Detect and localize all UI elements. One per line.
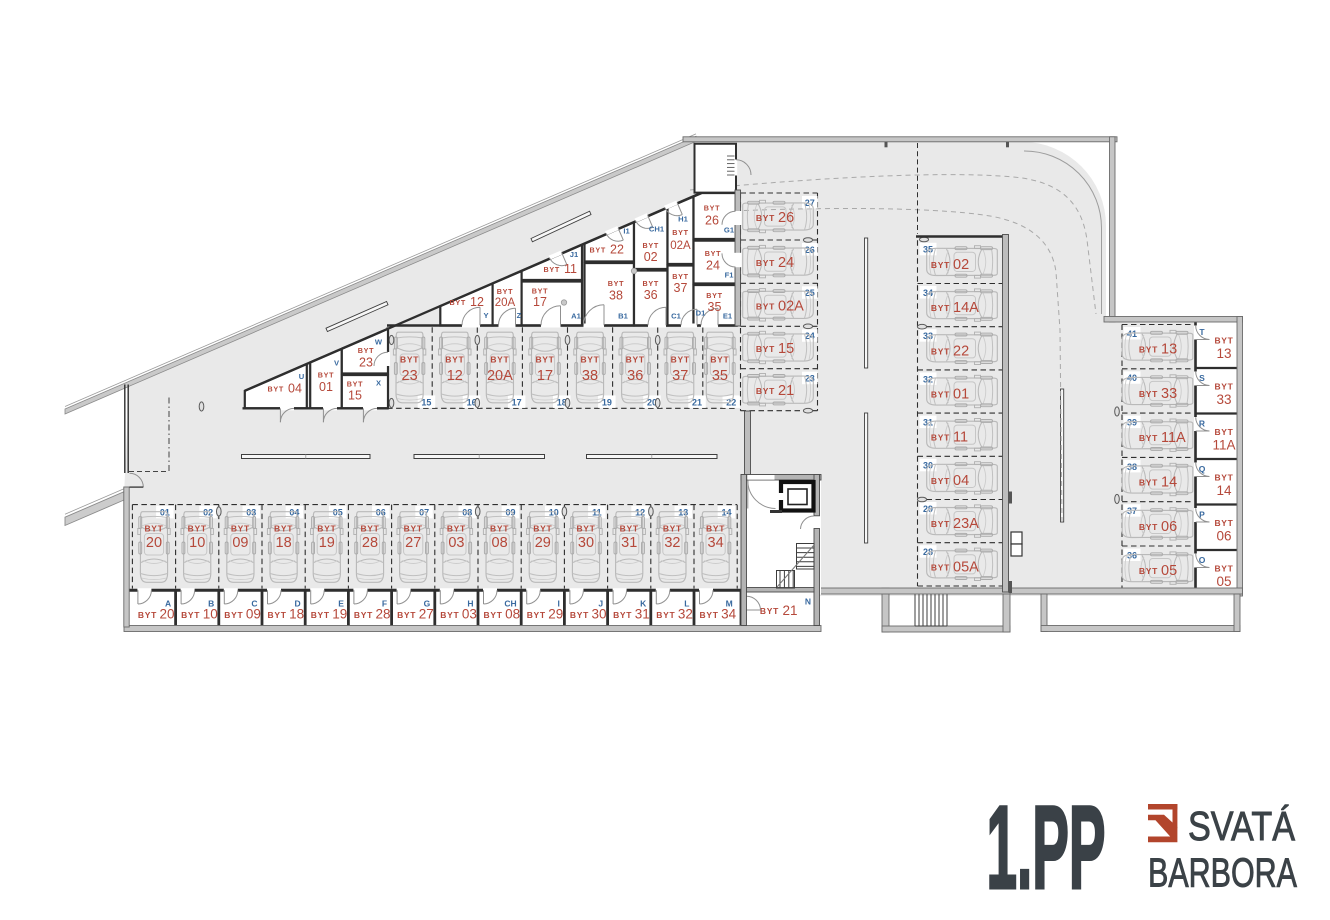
svg-text:BYT: BYT [705, 249, 721, 258]
svg-text:23A: 23A [953, 516, 979, 532]
svg-text:BYT: BYT [642, 241, 658, 250]
svg-text:20A: 20A [495, 297, 516, 309]
svg-text:28: 28 [923, 547, 933, 557]
svg-text:BYT: BYT [580, 355, 599, 365]
svg-text:05: 05 [1216, 574, 1231, 589]
svg-text:18: 18 [276, 535, 292, 551]
svg-text:P: P [1199, 510, 1205, 520]
svg-text:BYT: BYT [1214, 518, 1233, 528]
svg-text:BYT: BYT [527, 610, 546, 620]
svg-text:BYT: BYT [544, 265, 560, 274]
svg-text:W: W [375, 338, 383, 347]
svg-text:F1: F1 [725, 271, 735, 280]
svg-text:BYT: BYT [931, 519, 950, 529]
svg-text:E1: E1 [723, 312, 733, 321]
svg-text:BYT: BYT [1214, 564, 1233, 574]
svg-text:29: 29 [923, 504, 933, 514]
svg-text:11A: 11A [1161, 430, 1186, 446]
svg-text:21: 21 [778, 383, 794, 399]
svg-text:11A: 11A [1212, 438, 1235, 453]
svg-text:33: 33 [1161, 386, 1177, 402]
svg-text:BYT: BYT [138, 610, 157, 620]
svg-text:BYT: BYT [311, 610, 330, 620]
svg-text:15: 15 [348, 389, 362, 403]
svg-text:29: 29 [535, 535, 551, 551]
svg-text:N: N [805, 597, 811, 607]
svg-text:27: 27 [419, 607, 434, 622]
svg-text:14: 14 [1216, 483, 1232, 498]
svg-text:BYT: BYT [533, 524, 552, 534]
svg-text:31: 31 [635, 607, 650, 622]
svg-text:BYT: BYT [188, 524, 207, 534]
svg-text:13: 13 [1216, 346, 1231, 361]
svg-text:BYT: BYT [760, 606, 779, 616]
svg-text:BYT: BYT [710, 355, 729, 365]
svg-text:Q: Q [1199, 464, 1206, 474]
svg-text:31: 31 [621, 535, 637, 551]
svg-text:06: 06 [1216, 529, 1231, 544]
svg-text:BYT: BYT [620, 524, 639, 534]
svg-text:23: 23 [359, 356, 373, 370]
svg-text:D1: D1 [696, 309, 706, 318]
svg-text:BYT: BYT [699, 610, 718, 620]
svg-text:BYT: BYT [931, 433, 950, 443]
svg-text:BYT: BYT [1214, 427, 1233, 437]
svg-text:BYT: BYT [704, 204, 720, 213]
svg-text:BYT: BYT [570, 610, 589, 620]
svg-text:BYT: BYT [1139, 522, 1158, 532]
svg-text:19: 19 [332, 607, 347, 622]
svg-text:35: 35 [708, 300, 722, 314]
svg-text:BYT: BYT [317, 524, 336, 534]
svg-text:09: 09 [246, 607, 261, 622]
svg-text:BARBORA: BARBORA [1148, 850, 1297, 896]
svg-text:31: 31 [923, 418, 933, 428]
svg-text:12: 12 [447, 368, 463, 384]
svg-text:03: 03 [448, 535, 464, 551]
svg-text:BYT: BYT [360, 524, 379, 534]
svg-text:10: 10 [203, 607, 218, 622]
svg-text:B1: B1 [618, 312, 628, 321]
svg-text:BYT: BYT [274, 524, 293, 534]
svg-text:30: 30 [578, 535, 594, 551]
svg-text:BYT: BYT [706, 291, 722, 300]
svg-text:10: 10 [189, 535, 205, 551]
svg-text:BYT: BYT [608, 279, 624, 288]
svg-text:G1: G1 [724, 226, 735, 235]
svg-text:BYT: BYT [931, 562, 950, 572]
svg-text:BYT: BYT [672, 228, 688, 237]
svg-text:01: 01 [319, 380, 333, 394]
svg-text:02: 02 [644, 250, 658, 264]
svg-text:35: 35 [712, 368, 728, 384]
svg-text:02A: 02A [670, 240, 691, 252]
svg-text:08: 08 [492, 535, 508, 551]
svg-text:SVATÁ: SVATÁ [1188, 803, 1296, 849]
svg-text:BYT: BYT [497, 287, 513, 296]
svg-text:21: 21 [783, 603, 798, 618]
svg-text:BYT: BYT [445, 355, 464, 365]
svg-text:BYT: BYT [397, 610, 416, 620]
svg-text:26: 26 [778, 210, 794, 226]
svg-text:BYT: BYT [931, 346, 950, 356]
svg-text:13: 13 [1161, 342, 1177, 358]
svg-text:11: 11 [953, 430, 968, 446]
svg-text:BYT: BYT [268, 385, 284, 394]
svg-text:BYT: BYT [756, 213, 775, 223]
svg-text:BYT: BYT [756, 344, 775, 354]
svg-text:BYT: BYT [181, 610, 200, 620]
svg-text:20: 20 [146, 535, 162, 551]
svg-text:26: 26 [705, 214, 719, 228]
svg-text:38: 38 [1127, 462, 1137, 472]
svg-text:BYT: BYT [756, 258, 775, 268]
svg-text:24: 24 [706, 259, 720, 273]
svg-text:BYT: BYT [267, 610, 286, 620]
svg-text:11: 11 [564, 262, 577, 276]
svg-text:33: 33 [1216, 392, 1231, 407]
svg-text:BYT: BYT [231, 524, 250, 534]
svg-text:BYT: BYT [440, 610, 459, 620]
svg-text:BYT: BYT [1214, 382, 1233, 392]
svg-text:32: 32 [923, 374, 933, 384]
svg-text:20: 20 [160, 607, 175, 622]
svg-text:38: 38 [582, 368, 598, 384]
svg-text:BYT: BYT [1139, 433, 1158, 443]
svg-text:BYT: BYT [144, 524, 163, 534]
svg-text:BYT: BYT [318, 371, 334, 380]
svg-text:J1: J1 [570, 250, 579, 259]
svg-text:08: 08 [505, 607, 520, 622]
svg-text:22: 22 [953, 343, 969, 359]
svg-text:30: 30 [592, 607, 607, 622]
svg-text:04: 04 [953, 473, 969, 489]
svg-text:19: 19 [319, 535, 335, 551]
svg-text:37: 37 [672, 368, 688, 384]
svg-text:BYT: BYT [483, 610, 502, 620]
svg-text:36: 36 [644, 288, 658, 302]
svg-text:02A: 02A [778, 298, 804, 314]
svg-text:01: 01 [953, 387, 969, 403]
svg-text:BYT: BYT [1139, 478, 1158, 488]
svg-text:C1: C1 [671, 312, 681, 321]
svg-text:BYT: BYT [931, 303, 950, 313]
svg-text:BYT: BYT [1139, 566, 1158, 576]
svg-text:32: 32 [678, 607, 693, 622]
svg-text:37: 37 [674, 281, 688, 295]
svg-text:06: 06 [1161, 519, 1177, 535]
svg-text:BYT: BYT [576, 524, 595, 534]
svg-text:BYT: BYT [931, 390, 950, 400]
svg-text:H1: H1 [678, 215, 688, 224]
svg-text:BYT: BYT [347, 380, 363, 389]
svg-text:1.PP: 1.PP [987, 782, 1106, 914]
svg-text:BYT: BYT [756, 301, 775, 311]
svg-text:BYT: BYT [535, 355, 554, 365]
svg-text:15: 15 [778, 341, 794, 357]
svg-text:BYT: BYT [400, 355, 419, 365]
svg-text:BYT: BYT [706, 524, 725, 534]
svg-text:BYT: BYT [613, 610, 632, 620]
svg-text:05A: 05A [953, 559, 979, 575]
svg-text:BYT: BYT [358, 346, 374, 355]
svg-text:BYT: BYT [490, 524, 509, 534]
svg-text:X: X [376, 379, 381, 388]
svg-text:24: 24 [778, 255, 794, 271]
svg-text:30: 30 [923, 461, 933, 471]
svg-text:U: U [299, 372, 305, 381]
svg-text:A1: A1 [571, 312, 581, 321]
svg-text:BYT: BYT [656, 610, 675, 620]
svg-text:BYT: BYT [672, 272, 688, 281]
svg-text:23: 23 [402, 368, 418, 384]
svg-text:BYT: BYT [1214, 336, 1233, 346]
svg-text:39: 39 [1127, 418, 1137, 428]
svg-text:BYT: BYT [590, 246, 606, 255]
svg-text:34: 34 [708, 535, 724, 551]
svg-text:22: 22 [610, 243, 624, 257]
svg-text:02: 02 [953, 257, 969, 273]
svg-text:Y: Y [483, 311, 488, 320]
svg-text:Z: Z [517, 311, 522, 320]
svg-text:09: 09 [232, 535, 248, 551]
svg-text:BYT: BYT [1139, 389, 1158, 399]
svg-text:BYT: BYT [224, 610, 243, 620]
svg-text:04: 04 [288, 382, 302, 396]
svg-text:R: R [1199, 419, 1205, 429]
svg-text:BYT: BYT [404, 524, 423, 534]
svg-text:BYT: BYT [1214, 473, 1233, 483]
svg-text:BYT: BYT [663, 524, 682, 534]
svg-text:36: 36 [627, 368, 643, 384]
svg-text:T: T [1199, 327, 1205, 337]
svg-text:BYT: BYT [450, 298, 466, 307]
svg-text:35: 35 [923, 245, 933, 255]
svg-text:34: 34 [923, 288, 933, 298]
svg-text:CH1: CH1 [649, 225, 665, 234]
svg-text:S: S [1199, 373, 1205, 383]
svg-text:05: 05 [1161, 563, 1177, 579]
svg-text:38: 38 [609, 289, 623, 303]
svg-text:BYT: BYT [756, 386, 775, 396]
svg-text:28: 28 [362, 535, 378, 551]
svg-text:33: 33 [923, 331, 933, 341]
svg-text:41: 41 [1127, 329, 1137, 339]
svg-text:BYT: BYT [1139, 345, 1158, 355]
svg-text:28: 28 [376, 607, 391, 622]
svg-text:I1: I1 [623, 227, 630, 236]
svg-text:12: 12 [470, 295, 484, 309]
svg-text:36: 36 [1127, 550, 1137, 560]
svg-text:BYT: BYT [931, 476, 950, 486]
svg-text:BYT: BYT [671, 355, 690, 365]
svg-text:BYT: BYT [354, 610, 373, 620]
svg-text:BYT: BYT [642, 279, 658, 288]
svg-text:O: O [1199, 555, 1206, 565]
svg-text:32: 32 [664, 535, 680, 551]
svg-text:17: 17 [537, 368, 553, 384]
svg-text:BYT: BYT [490, 355, 509, 365]
svg-text:17: 17 [533, 295, 547, 309]
svg-text:14: 14 [1161, 475, 1177, 491]
svg-text:14A: 14A [953, 300, 979, 316]
svg-text:BYT: BYT [931, 260, 950, 270]
svg-text:27: 27 [405, 535, 421, 551]
svg-text:29: 29 [548, 607, 563, 622]
svg-text:34: 34 [721, 607, 737, 622]
svg-text:03: 03 [462, 607, 477, 622]
svg-text:BYT: BYT [447, 524, 466, 534]
svg-text:18: 18 [289, 607, 304, 622]
svg-text:20A: 20A [487, 368, 513, 384]
svg-text:BYT: BYT [626, 355, 645, 365]
